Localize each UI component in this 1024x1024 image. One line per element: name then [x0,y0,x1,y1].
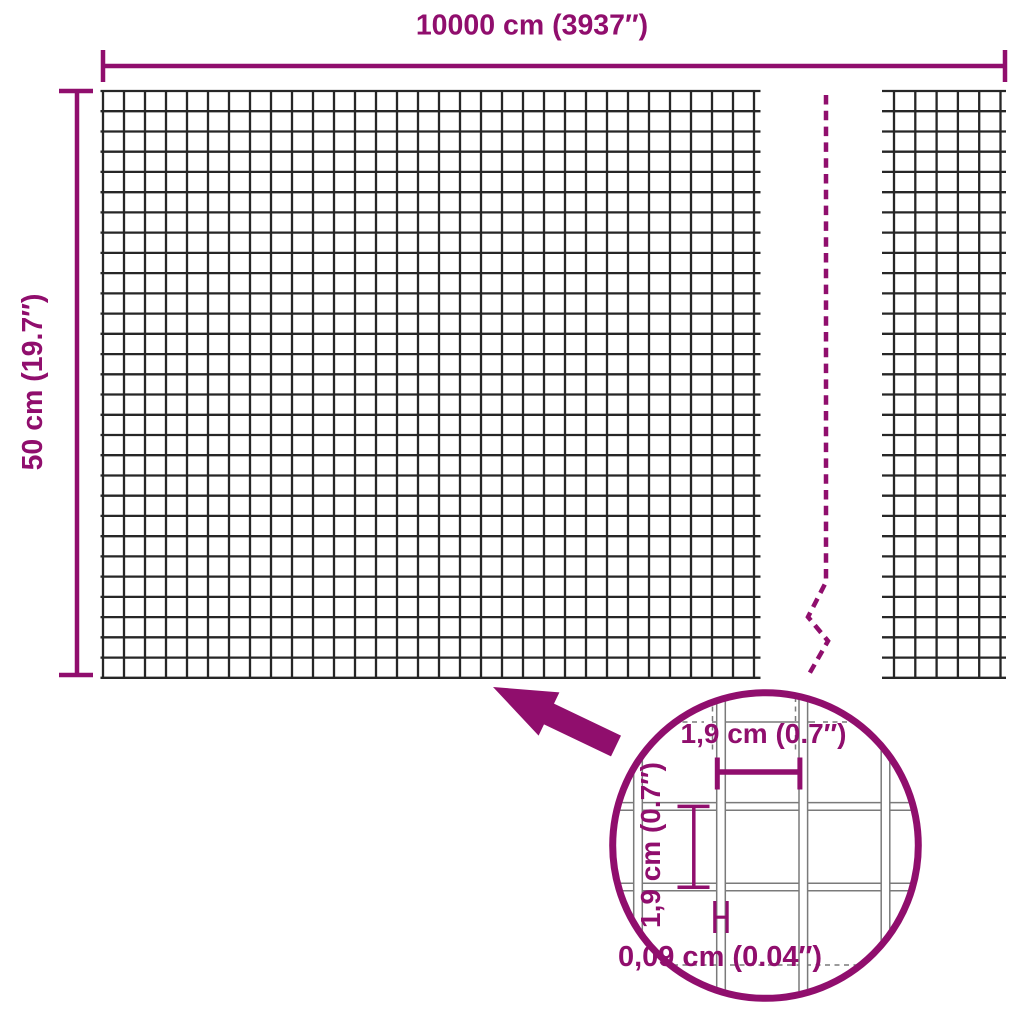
svg-text:10000 cm (3937″): 10000 cm (3937″) [416,10,648,42]
svg-text:1,9 cm (0.7″): 1,9 cm (0.7″) [635,762,666,928]
svg-text:50 cm (19.7″): 50 cm (19.7″) [17,294,49,471]
svg-text:1,9 cm (0.7″): 1,9 cm (0.7″) [681,718,847,749]
